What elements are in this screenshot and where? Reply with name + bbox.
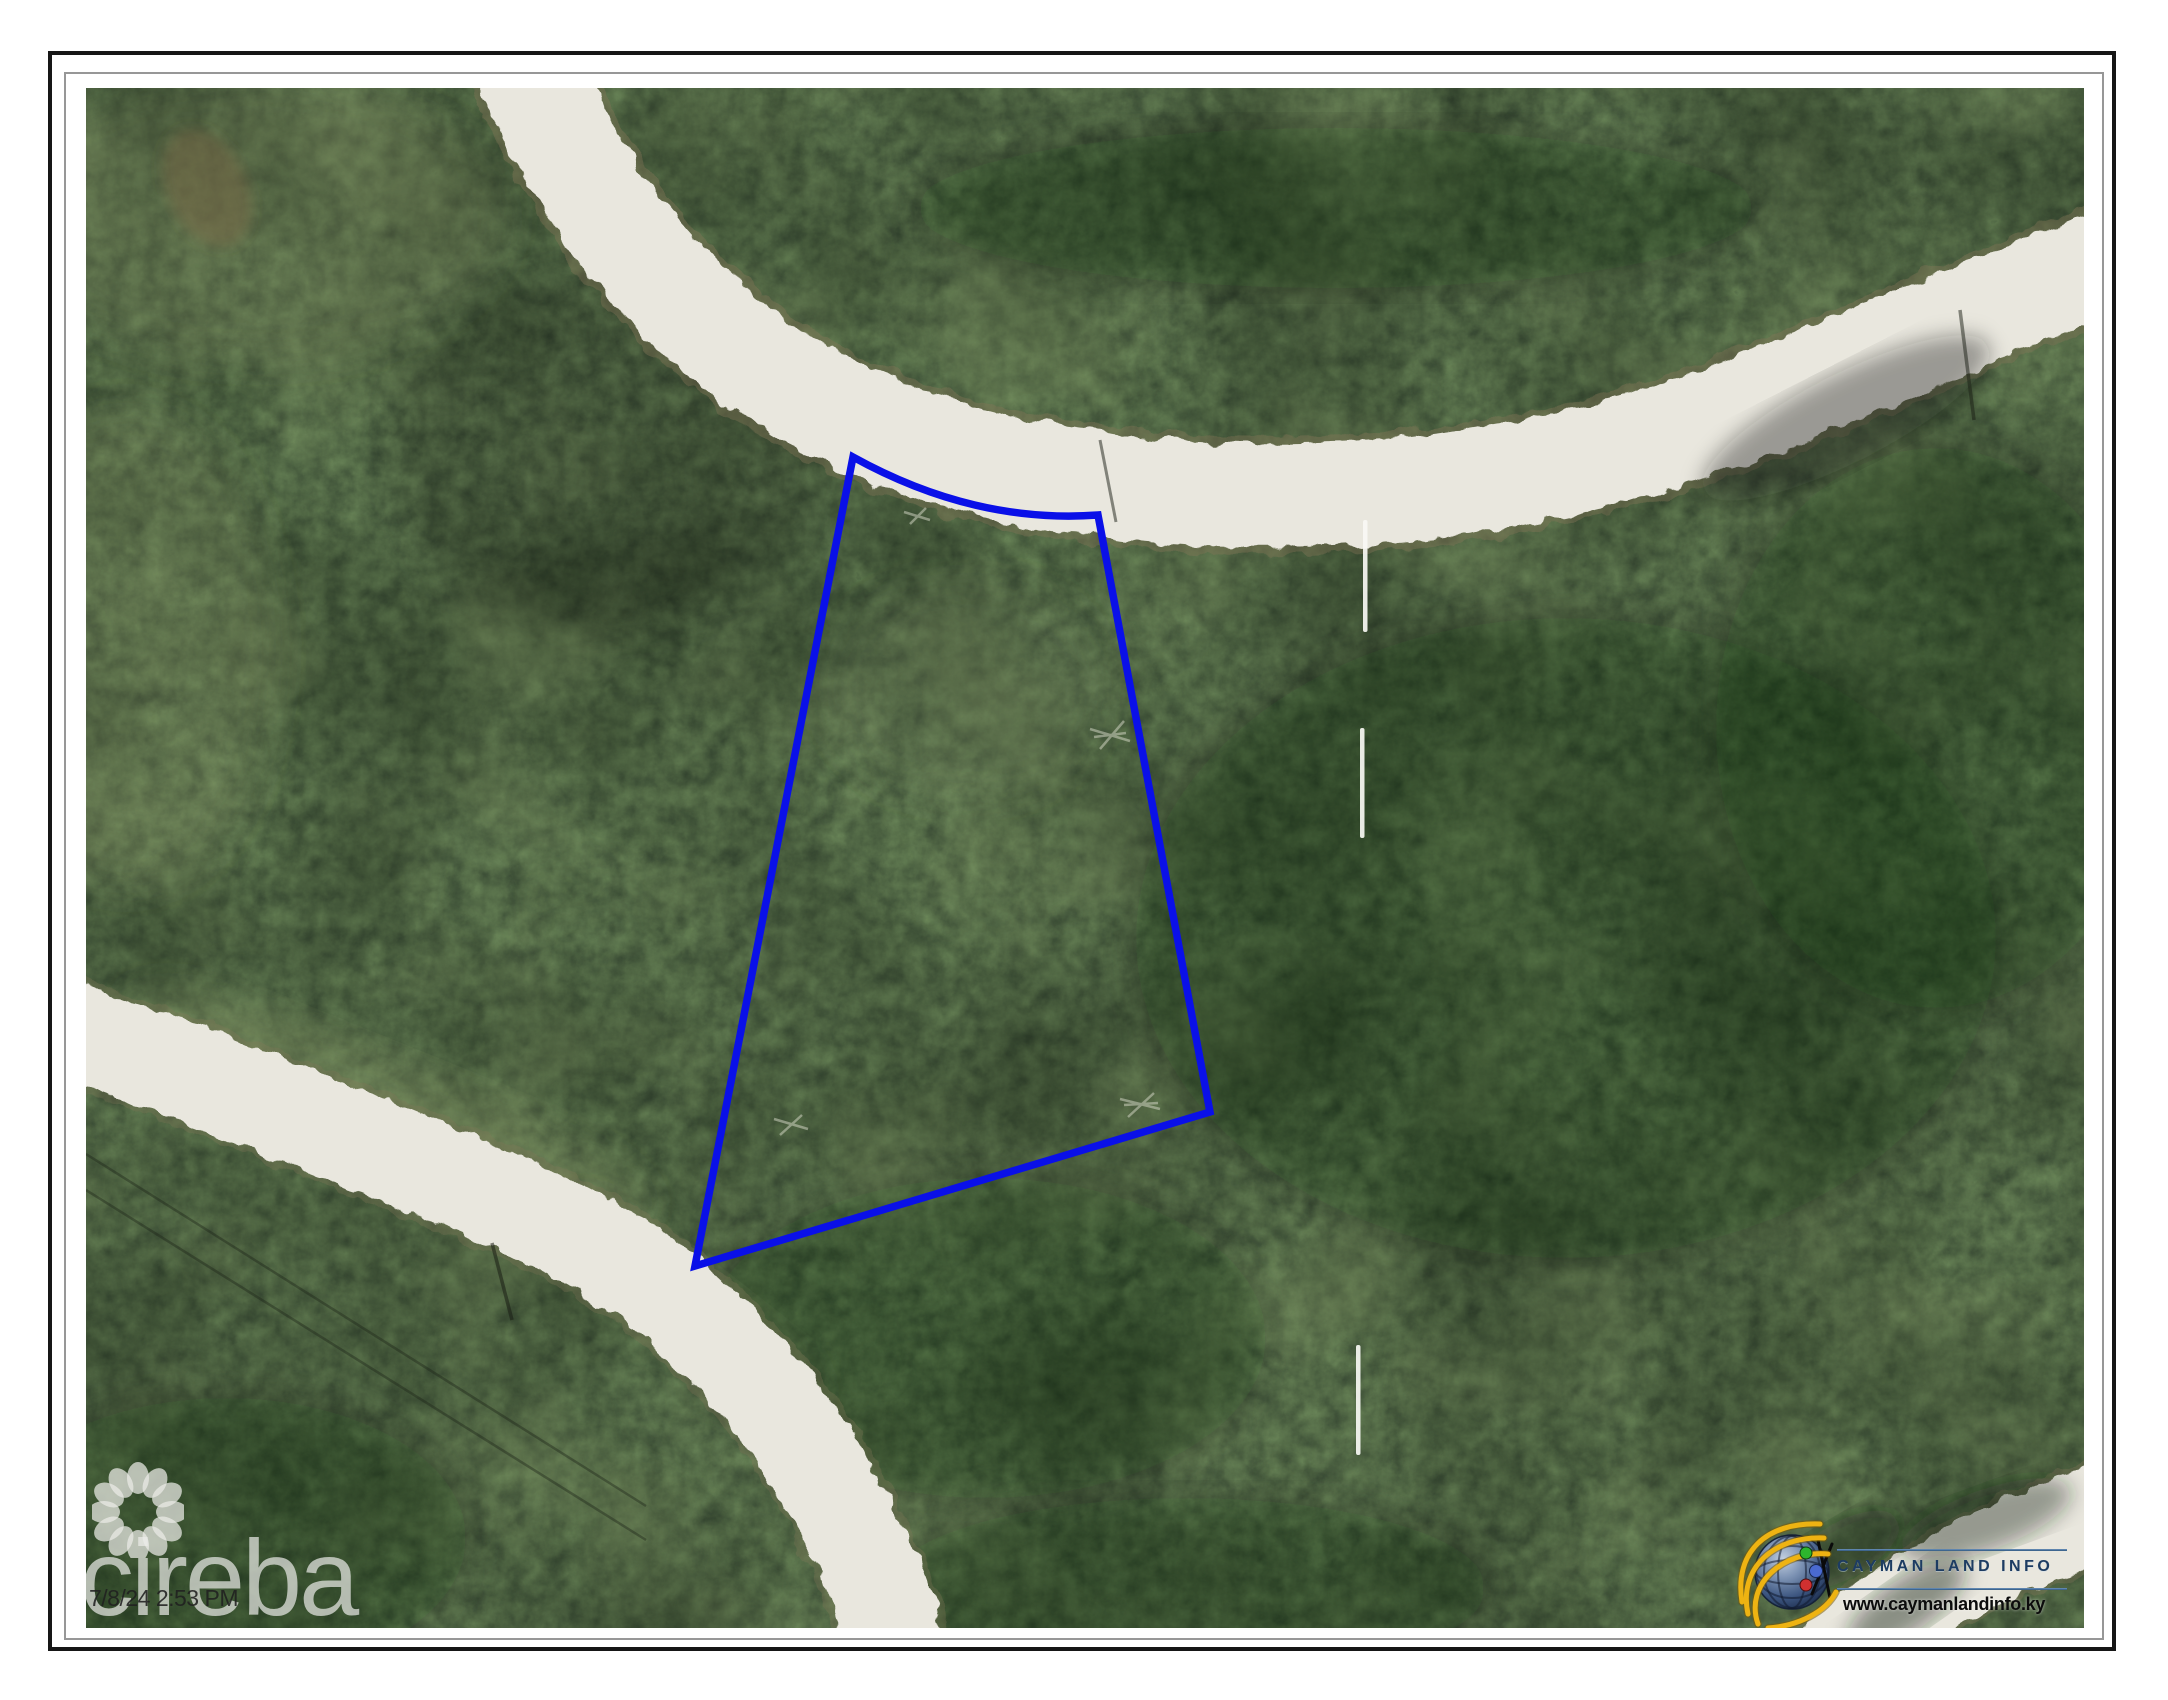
survey-dash (1356, 1345, 1361, 1455)
map-sheet: cireba 7/8/24 2:53 PM (0, 0, 2168, 1700)
logo-rule-bottom (1837, 1588, 2067, 1590)
survey-dash (1363, 520, 1368, 632)
cayman-land-info-url: www.caymanlandinfo.ky (1843, 1594, 2045, 1615)
aerial-scene (86, 88, 2084, 1628)
capture-timestamp: 7/8/24 2:53 PM (89, 1585, 238, 1612)
aerial-photo: cireba 7/8/24 2:53 PM (86, 88, 2084, 1628)
survey-dash (1360, 728, 1365, 838)
logo-rule-top (1837, 1549, 2067, 1551)
cayman-land-info-title: CAYMAN LAND INFO (1837, 1558, 2077, 1576)
globe-with-orbits-icon (1732, 1512, 1852, 1628)
cayman-land-info-logo: CAYMAN LAND INFO www.caymanlandinfo.ky (1732, 1512, 2084, 1628)
